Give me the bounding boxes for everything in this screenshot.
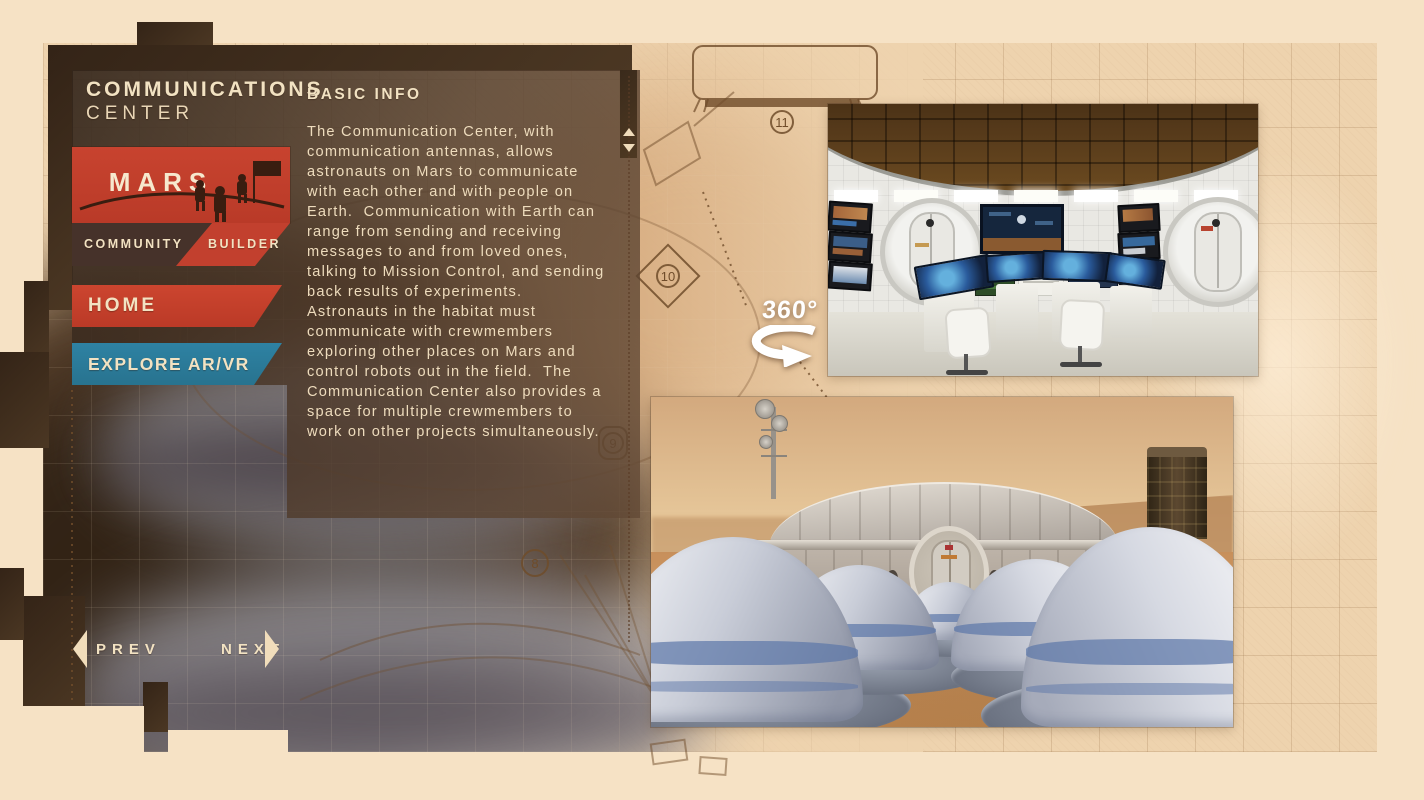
page-title-line1: COMMUNICATIONS [86,78,324,102]
section-heading: BASIC INFO [307,86,422,104]
antenna-tower [755,399,795,499]
page-title-line2: CENTER [86,103,194,125]
blueprint-callout: 10 [661,269,675,284]
prev-button[interactable]: PREV [96,641,161,658]
scroll-down-icon[interactable] [623,144,635,152]
blueprint-callout: 8 [531,556,538,571]
explore-arvr-button[interactable]: EXPLORE AR/VR [72,343,282,385]
mars-logo-art [72,147,290,223]
blueprint-callout: 11 [775,115,789,130]
mars-logo: MARS [72,147,290,223]
storage-tank [1147,447,1207,539]
explore-arvr-button-label: EXPLORE AR/VR [88,354,250,375]
console-base [1110,286,1152,338]
home-button[interactable]: HOME [72,285,282,327]
habitat-exterior-photo [651,397,1233,727]
badge-360[interactable]: 360° [742,296,838,368]
logo-tagline-left: COMMUNITY [84,237,184,251]
main-display [980,204,1064,254]
info-body-text: The Communication Center, with communica… [307,122,613,442]
prev-arrow-icon[interactable] [73,630,87,668]
office-chair [944,307,991,360]
console-base [996,284,1038,340]
app-screen: 11 10 9 8 COMMUNICATIONS CENTER BASIC IN… [0,0,1424,800]
comm-center-interior-photo[interactable] [828,104,1258,376]
scroll-up-icon[interactable] [623,128,635,136]
logo-tagline-right: BUILDER [208,237,281,251]
console-touchscreen [985,251,1049,283]
console-touchscreen [1041,250,1112,282]
next-arrow-icon[interactable] [265,630,279,668]
badge-360-label: 360° [741,296,839,325]
scrollbar-track[interactable] [628,76,630,642]
rotate-arrow-icon [744,325,836,367]
office-chair [1059,299,1106,351]
home-button-label: HOME [88,295,157,317]
